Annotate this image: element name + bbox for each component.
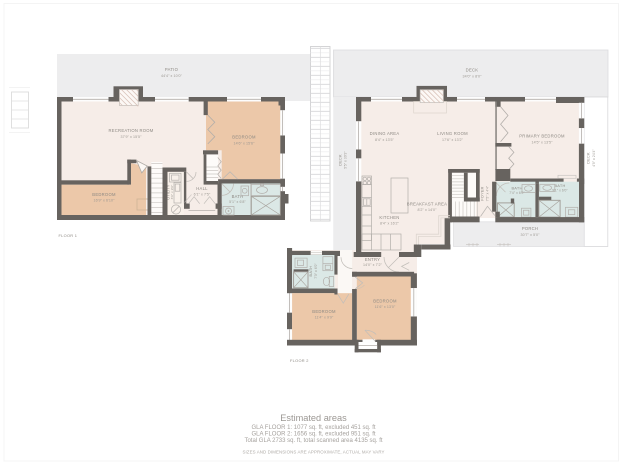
svg-text:6'1" x 7'5": 6'1" x 7'5" [194,193,211,197]
svg-text:BEDROOM: BEDROOM [373,299,397,304]
svg-text:3'6" x 9'6": 3'6" x 9'6" [170,185,174,200]
svg-text:5'5" x 30'3": 5'5" x 30'3" [344,151,348,169]
svg-text:PATIO: PATIO [165,67,179,72]
svg-text:KITCHEN: KITCHEN [379,215,399,220]
svg-text:8'2" x 14'0": 8'2" x 14'0" [418,208,438,212]
svg-text:SIZES AND DIMENSIONS ARE APPRO: SIZES AND DIMENSIONS ARE APPROXIMATE, AC… [242,450,384,455]
svg-text:GLA FLOOR 2: 1656 sq. ft, excl: GLA FLOOR 2: 1656 sq. ft, excluded 951 s… [251,432,375,438]
svg-text:BEDROOM: BEDROOM [92,192,116,197]
svg-text:14'5" x 13'5": 14'5" x 13'5" [531,141,553,145]
svg-text:GLA FLOOR 1: 1077 sq. ft, excl: GLA FLOOR 1: 1077 sq. ft, excluded 451 s… [251,425,375,431]
svg-text:RECREATION ROOM: RECREATION ROOM [108,128,153,133]
svg-text:Total GLA 2733 sq. ft, total s: Total GLA 2733 sq. ft, total scanned are… [244,438,382,444]
svg-text:BEDROOM: BEDROOM [312,309,336,314]
svg-text:DINING AREA: DINING AREA [370,131,400,136]
svg-text:17'6" x 13'2": 17'6" x 13'2" [442,138,464,142]
svg-text:8'4" x 13'5": 8'4" x 13'5" [375,138,395,142]
svg-text:14'0" x 7'2": 14'0" x 7'2" [363,263,383,267]
svg-text:LIVING ROOM: LIVING ROOM [437,131,468,136]
svg-text:BATH: BATH [309,266,313,277]
svg-text:HALL: HALL [196,186,208,191]
svg-text:FLOOR 2: FLOOR 2 [290,358,309,363]
svg-text:BATH: BATH [554,183,565,188]
svg-text:Estimated areas: Estimated areas [280,413,347,423]
svg-text:DECK: DECK [339,154,343,166]
svg-text:11'4" x 9'9": 11'4" x 9'9" [315,316,334,320]
svg-text:7'0" x 6'0": 7'0" x 6'0" [314,263,318,279]
svg-text:FLOOR 1: FLOOR 1 [59,233,78,238]
svg-text:14'6" x 15'6": 14'6" x 15'6" [233,141,255,145]
svg-text:11'6" x 13'0": 11'6" x 13'0" [375,305,396,309]
svg-text:PORCH: PORCH [522,226,538,231]
svg-text:DECK: DECK [587,152,591,164]
svg-text:37'9" x 15'5": 37'9" x 15'5" [120,135,142,139]
svg-text:44'4" x 10'0": 44'4" x 10'0" [161,74,183,78]
svg-text:30'7" x 5'0": 30'7" x 5'0" [521,233,541,237]
svg-text:BEDROOM: BEDROOM [232,134,256,139]
svg-text:ENTRY: ENTRY [365,257,380,262]
svg-text:FOYER: FOYER [481,186,485,200]
svg-text:5'1" x 6'8": 5'1" x 6'8" [229,200,246,204]
svg-text:DECK: DECK [466,68,479,73]
svg-text:34'0" x 8'0": 34'0" x 8'0" [463,75,483,79]
svg-text:BREAKFAST AREA: BREAKFAST AREA [407,202,447,207]
svg-text:7'4" x 6'0": 7'4" x 6'0" [509,191,525,195]
svg-text:BATH: BATH [511,186,522,191]
svg-text:7'5" x 4'4": 7'5" x 4'4" [486,185,490,201]
svg-text:BATH: BATH [232,194,244,199]
svg-text:4'9" x 24'4": 4'9" x 24'4" [592,149,596,167]
svg-text:16'9" x 6'10": 16'9" x 6'10" [93,199,115,203]
svg-text:PRIMARY BEDROOM: PRIMARY BEDROOM [519,134,565,139]
svg-text:8'4" x 16'2": 8'4" x 16'2" [380,222,400,226]
